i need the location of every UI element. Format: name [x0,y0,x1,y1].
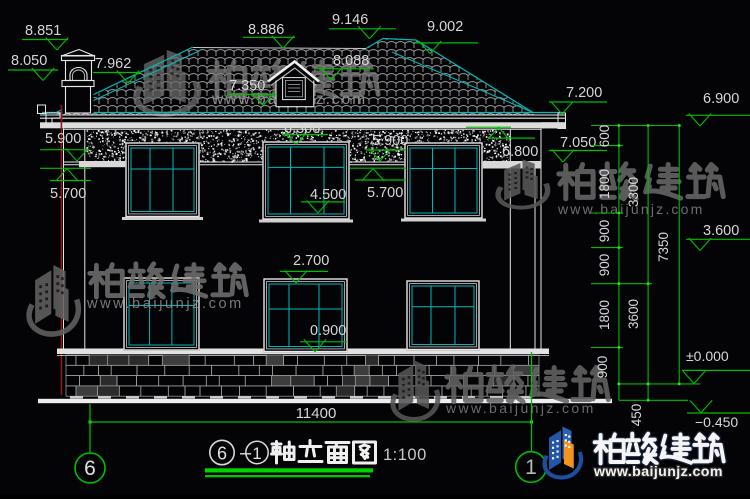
svg-text:900: 900 [597,220,612,243]
svg-text:3300: 3300 [626,177,641,207]
svg-text:1: 1 [252,444,261,463]
svg-text:7.350: 7.350 [229,78,265,94]
svg-text:7350: 7350 [656,232,671,262]
svg-text:1: 1 [525,456,537,479]
svg-text:11400: 11400 [296,405,337,422]
svg-text:7.200: 7.200 [566,85,602,101]
svg-text:www.baijunjz.com: www.baijunjz.com [86,296,244,312]
svg-text:6: 6 [217,444,227,464]
svg-text:6: 6 [84,457,96,480]
svg-text:2.700: 2.700 [293,253,329,269]
svg-text:0.900: 0.900 [310,323,346,339]
svg-text:8.050: 8.050 [11,53,47,69]
svg-text:−0.450: −0.450 [695,414,738,430]
svg-text:5.900: 5.900 [372,133,408,149]
svg-text:www.baijunjz.com: www.baijunjz.com [445,400,596,416]
svg-text:7.962: 7.962 [95,56,131,72]
svg-text:8.886: 8.886 [248,22,284,38]
svg-text:1800: 1800 [597,300,612,330]
svg-text:7.050: 7.050 [560,135,596,151]
svg-text:8.851: 8.851 [25,23,61,39]
svg-text:1800: 1800 [597,169,612,199]
svg-text:600: 600 [597,125,612,148]
svg-text:5.700: 5.700 [367,185,403,201]
svg-text:5.700: 5.700 [50,186,86,202]
svg-text:8.088: 8.088 [333,53,369,69]
svg-text:3.600: 3.600 [703,223,739,239]
svg-text:4.500: 4.500 [310,187,346,203]
svg-text:6.800: 6.800 [502,144,538,160]
svg-text:6.900: 6.900 [703,91,739,107]
svg-text:900: 900 [597,254,612,277]
svg-text:450: 450 [629,404,644,427]
svg-text:3600: 3600 [626,299,641,329]
svg-text:9.146: 9.146 [332,12,368,28]
svg-text:1:100: 1:100 [383,446,427,464]
svg-text:±0.000: ±0.000 [686,348,729,364]
svg-text:9.002: 9.002 [427,19,463,35]
svg-text:www.baijunjz.com: www.baijunjz.com [593,464,723,480]
svg-text:900: 900 [595,356,610,379]
svg-text:5.900: 5.900 [45,131,81,147]
